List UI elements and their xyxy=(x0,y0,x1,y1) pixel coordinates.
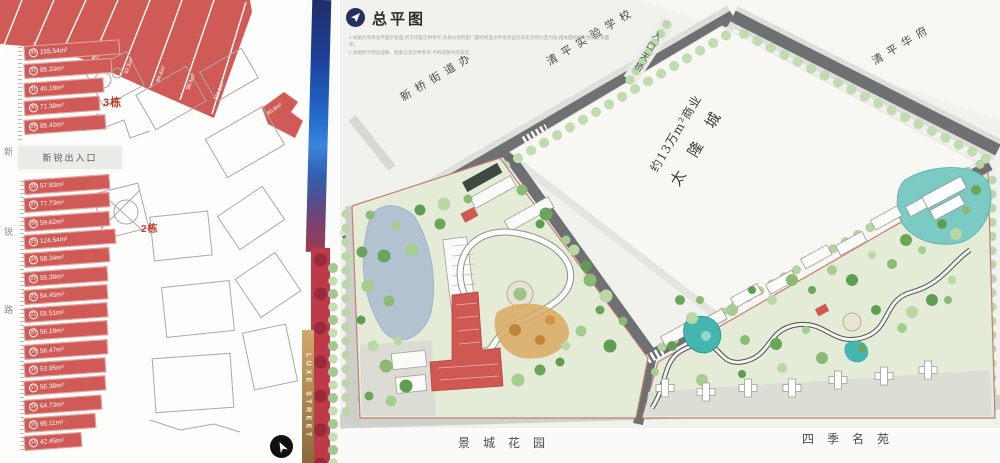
street-name-char: 新 xyxy=(4,145,13,158)
unit-area: 124.54m² xyxy=(40,236,68,245)
blue-brush-strip xyxy=(306,0,332,252)
street-name-char: 路 xyxy=(4,303,13,316)
floorplan-panel: 96.4m²88.3m²85.2m²87.7m²92.5m²84.6m²98.5… xyxy=(0,0,305,463)
unit-area: 40.19m² xyxy=(40,84,64,93)
page-title: 总平图 xyxy=(372,8,426,29)
unit-number: 15 xyxy=(29,420,39,430)
disclaimer-line-2: 2.本图所示周边道路、配套信息仅供参考,不构成要约或承诺。 xyxy=(349,49,611,56)
compass-arrow-icon xyxy=(346,8,365,27)
disclaimer-line-1: 1.本图为项目总平面示意图,所示内容仅供参考,具体以政府部门最终批准文件及商品房… xyxy=(349,34,611,49)
unit-number: 25 xyxy=(29,237,39,247)
unit-area: 85.42m² xyxy=(40,121,64,130)
building-2-label: 2栋 xyxy=(141,220,159,235)
luxe-street-label: LUXE STREET xyxy=(305,353,312,440)
unit-number: 27 xyxy=(29,200,39,210)
masterplan-drawing xyxy=(340,0,1000,463)
unit-area: 64.73m² xyxy=(40,401,64,410)
unit-number: 20 xyxy=(29,328,39,338)
unit-area: 53.95m² xyxy=(40,364,64,373)
luxe-street-bar: LUXE STREET xyxy=(302,330,314,463)
unit-number: 30 xyxy=(29,103,39,113)
unit-area: 54.45m² xyxy=(40,291,64,300)
unit-number: 31 xyxy=(29,85,39,95)
unit-area: 56.38m² xyxy=(40,383,64,392)
unit-number: 24 xyxy=(29,255,39,265)
entrance-band: 新锐出入口 xyxy=(18,146,122,169)
unit-area: 55.38m² xyxy=(40,273,64,282)
unit-area: 55.51m² xyxy=(40,309,64,318)
north-arrow-button[interactable] xyxy=(270,435,293,458)
street-name-char: 锐 xyxy=(4,225,13,238)
unit-area: 95.11m² xyxy=(40,419,64,428)
unit-number: 14 xyxy=(29,438,39,448)
unit-number: 19 xyxy=(29,347,39,357)
unit-area: 59.62m² xyxy=(40,218,64,227)
unit-area: 85.33m² xyxy=(40,66,64,75)
unit-area: 56.47m² xyxy=(40,346,64,355)
unit-area: 42.45m² xyxy=(40,437,64,446)
unit-area: 58.34m² xyxy=(40,254,64,263)
unit-number: 22 xyxy=(29,292,39,302)
unit-number: 23 xyxy=(29,274,39,284)
unit-area: 56.19m² xyxy=(40,328,64,337)
unit-number: 32 xyxy=(29,66,39,76)
page: 96.4m²88.3m²85.2m²87.7m²92.5m²84.6m²98.5… xyxy=(0,0,1000,463)
unit-number: 28 xyxy=(29,182,39,192)
unit-number: 18 xyxy=(29,365,39,375)
unit-area: 155.54m² xyxy=(40,47,68,56)
tree-dot-strip xyxy=(327,262,339,463)
unit-number: 26 xyxy=(29,219,39,229)
unit-number: 16 xyxy=(29,402,39,412)
unit-number: 33 xyxy=(29,48,39,58)
masterplan-map: 新桥街道办 清平实验学校 入口天桥 清平华府 约13万m²商业 太 隆 城 景城… xyxy=(340,0,1000,463)
unit-area: 77.73m² xyxy=(40,200,64,209)
unit-area: 57.83m² xyxy=(40,181,64,190)
dimension-ticks xyxy=(18,46,22,140)
building-3-label: 3栋 xyxy=(103,94,122,110)
unit-number: 17 xyxy=(29,383,39,393)
unit-number: 21 xyxy=(29,310,39,320)
unit-number: 29 xyxy=(29,122,39,132)
unit-area: 71.38m² xyxy=(40,102,64,111)
round-plaza xyxy=(843,313,861,331)
